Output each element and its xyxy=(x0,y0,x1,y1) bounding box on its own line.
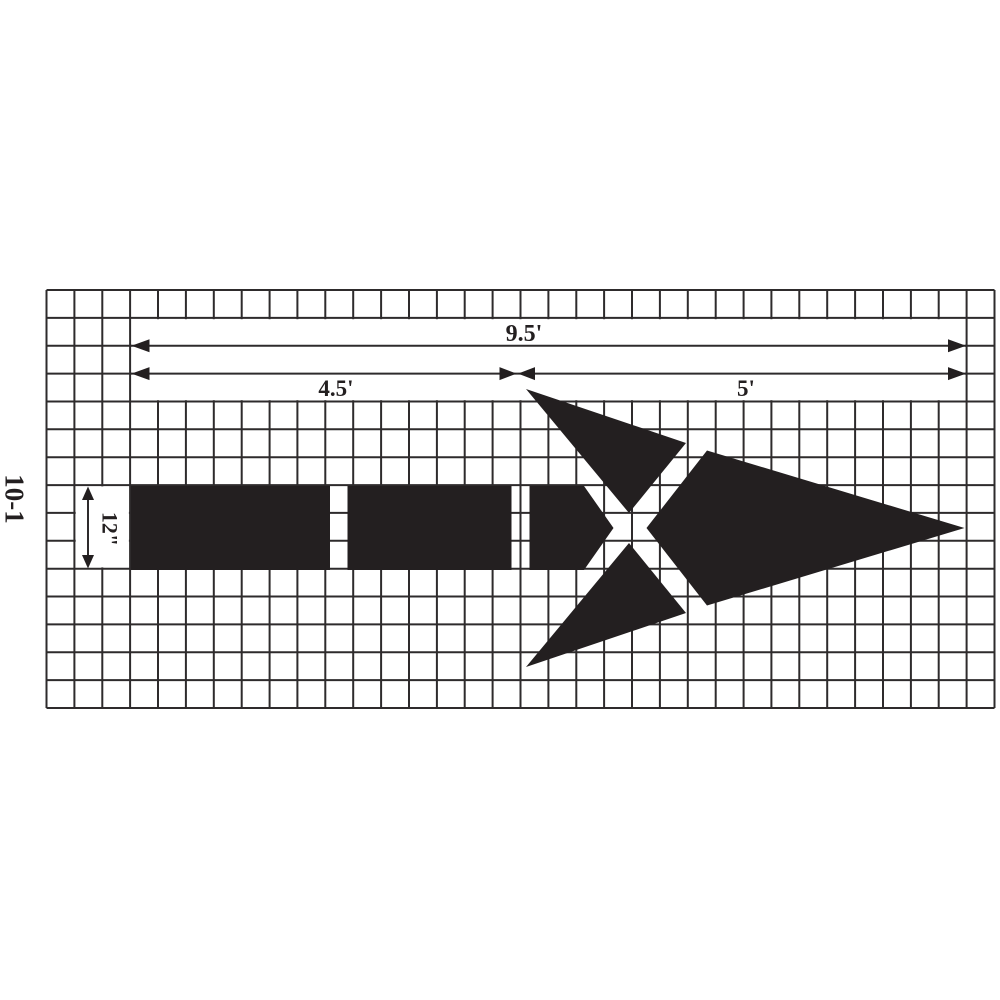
svg-text:4.5': 4.5' xyxy=(318,376,353,401)
svg-text:12": 12" xyxy=(97,512,122,546)
svg-text:5': 5' xyxy=(737,376,755,401)
svg-text:9.5': 9.5' xyxy=(506,321,543,347)
svg-text:10-1: 10-1 xyxy=(0,474,29,524)
